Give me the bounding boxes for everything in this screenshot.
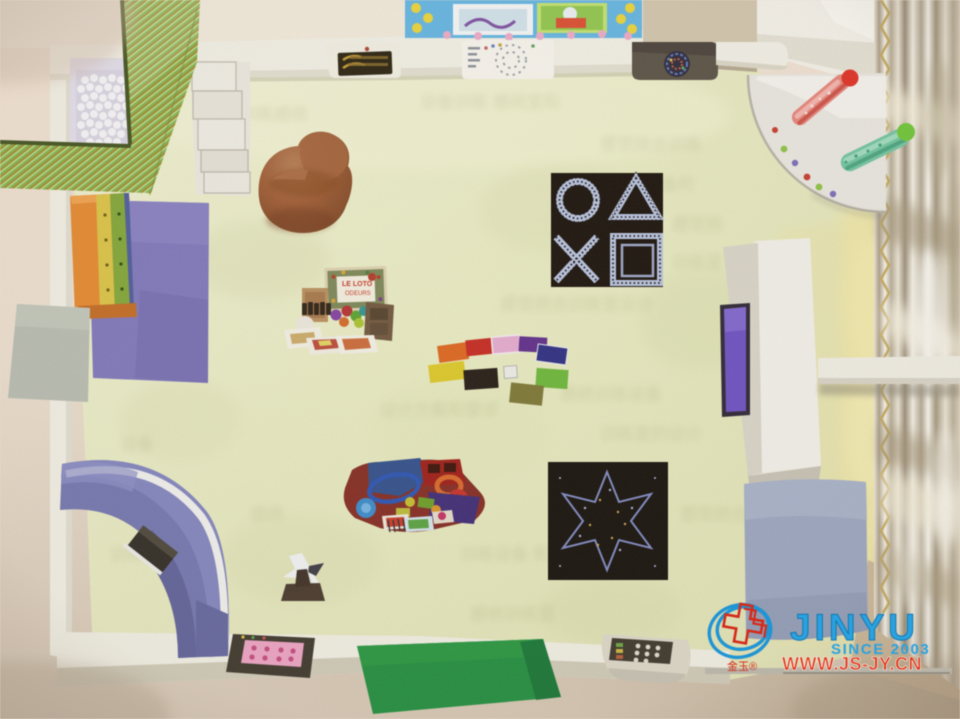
svg-text:WWW.JS-JY.CN: WWW.JS-JY.CN: [782, 654, 922, 674]
svg-text:金玉®: 金玉®: [727, 659, 757, 673]
